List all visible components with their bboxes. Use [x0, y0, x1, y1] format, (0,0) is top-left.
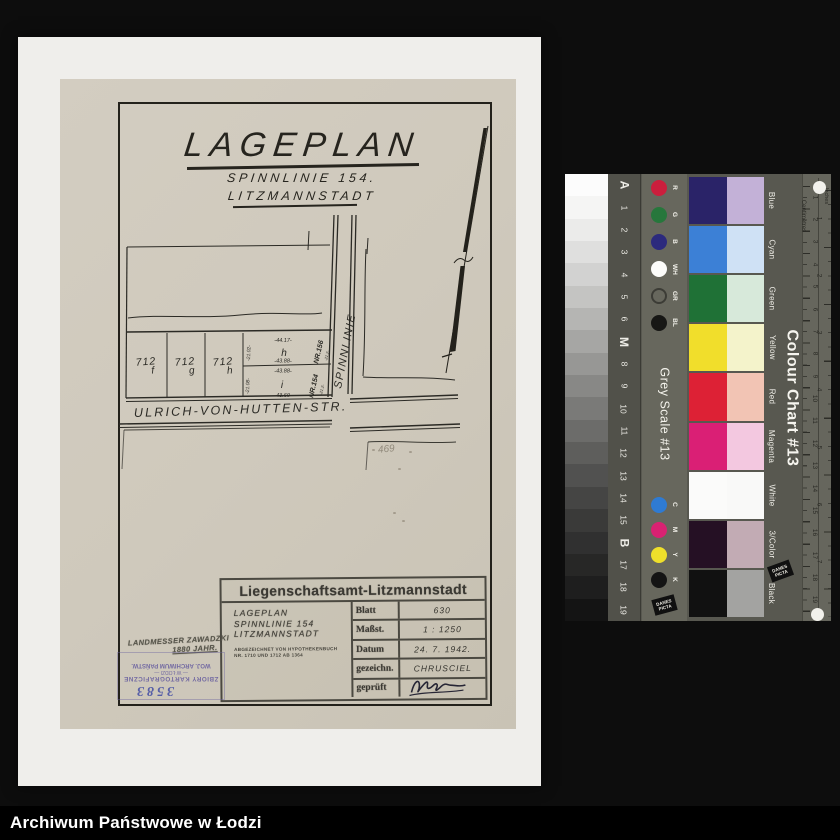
index-label: 19 [608, 599, 640, 621]
row-label: Maßst. [353, 621, 400, 639]
dot-label: WH [671, 264, 678, 273]
dot-swatch-row: Y [651, 542, 679, 567]
index-label-text: 4 [619, 272, 629, 277]
stamp-line-collections: ZBIORY KARTOGRAFICZNE [118, 675, 224, 682]
stamp-line-archive: WOJ. ARCHIWUM PAŃSTW. [118, 661, 224, 668]
dot-label: BL [671, 318, 678, 327]
inch-number-text: 6 [815, 502, 822, 506]
pencil-speck [372, 449, 375, 451]
row-value: CHRUSCIEL [400, 659, 485, 677]
signature-scribble [405, 676, 479, 699]
index-label: 17 [608, 554, 640, 576]
tint-patch [727, 324, 764, 371]
color-row-label: Green [768, 287, 777, 311]
grey-step [565, 576, 608, 598]
inch-number-text: 1 [815, 217, 822, 221]
color-dot [651, 261, 667, 277]
color-row: Blue [689, 177, 780, 224]
index-label: A [608, 174, 640, 196]
ruler: 12345678910111213141516171819 1234567 Ce… [802, 174, 831, 621]
color-row-label-wrap: Yellow [764, 324, 780, 371]
pencil-speck [393, 512, 396, 514]
punch-hole [811, 608, 824, 621]
inch-number-text: 3 [815, 331, 822, 335]
color-row: Magenta [689, 423, 780, 470]
row-value: 630 [400, 601, 485, 619]
plot-number-row: 712 f 712 g 712 h [127, 336, 243, 396]
title-block: Liegenschaftsamt-Litzmannstadt LAGEPLANS… [219, 576, 487, 702]
grey-step [565, 174, 608, 196]
color-row-label-wrap: White [764, 472, 780, 519]
index-label-text: 17 [619, 560, 629, 569]
index-label-text: 19 [619, 605, 629, 614]
index-label: 4 [608, 263, 640, 285]
grey-step [565, 599, 608, 621]
index-label-text: B [617, 538, 631, 547]
grey-step [565, 353, 608, 375]
solid-patch [689, 324, 727, 371]
inch-numbers: 1234567 [814, 190, 823, 590]
grey-step [565, 397, 608, 419]
color-dot [651, 572, 667, 588]
index-label-text: 3 [619, 250, 629, 255]
color-row-label-wrap: Blue [764, 177, 780, 224]
pencil-note: 469 [377, 443, 395, 456]
note-lines: ABGEZEICHNET VON HYPOTHEKENBUCHNR. 1710 … [234, 646, 348, 659]
solid-patch [689, 472, 727, 519]
row-label: geprüft [353, 679, 400, 697]
plot-parcel: 712 g [163, 334, 207, 397]
title-block-row: Maßst. 1 : 1250 [353, 620, 485, 641]
solid-patch [689, 275, 727, 322]
inch-quarter-ticks [828, 190, 832, 617]
grey-step [565, 263, 608, 285]
grey-step [565, 442, 608, 464]
grey-step [565, 464, 608, 486]
row-label: Datum [353, 640, 400, 658]
accession-number: 3583 [118, 682, 224, 699]
footer-bar: Archiwum Państwowe w Łodzi [0, 806, 840, 840]
grey-step [565, 375, 608, 397]
dot-label: K [671, 575, 678, 584]
color-row: Green [689, 275, 780, 322]
index-label-text: 6 [619, 317, 629, 322]
color-dot [651, 547, 667, 563]
color-row: Yellow [689, 324, 780, 371]
color-dot [651, 180, 667, 196]
grey-step [565, 487, 608, 509]
grey-step [565, 219, 608, 241]
solid-patch [689, 521, 727, 568]
inch-number: 6 [814, 476, 823, 533]
color-row-label: Red [767, 389, 776, 405]
tint-patch [727, 423, 764, 470]
index-label: 3 [608, 241, 640, 263]
inch-number: 7 [814, 533, 823, 590]
tint-patch [727, 570, 764, 617]
inch-number: 3 [814, 304, 823, 361]
color-row-label-wrap: Green [764, 275, 780, 322]
title-block-header: Liegenschaftsamt-Litzmannstadt [221, 578, 484, 603]
grey-step [565, 286, 608, 308]
solid-patch [689, 570, 727, 617]
index-label-text: 15 [619, 516, 629, 525]
color-dot [651, 522, 667, 538]
index-label: 6 [608, 308, 640, 330]
color-dot [651, 234, 667, 250]
tint-patch [727, 521, 764, 568]
grey-step [565, 509, 608, 531]
color-row-label: Black [768, 583, 777, 604]
dot-label: R [671, 183, 678, 192]
index-label-text: 18 [619, 583, 629, 592]
inch-number-text: 7 [815, 560, 822, 564]
dot-label: M [671, 525, 678, 534]
dot-swatches-cmyk: C M Y K [651, 492, 679, 592]
color-row-label: Cyan [768, 240, 777, 260]
dot-swatch-row: G [651, 201, 679, 228]
index-label: 18 [608, 576, 640, 598]
dot-label: GR [671, 291, 678, 300]
color-dot [651, 207, 667, 223]
inch-number: 5 [814, 419, 823, 476]
dot-swatch-row: C [651, 492, 679, 517]
index-label: 5 [608, 286, 640, 308]
project-line: LITZMANNSTADT [234, 628, 348, 639]
color-row: Black [689, 570, 780, 617]
dot-swatch-row: WH [651, 255, 679, 282]
grey-step [565, 196, 608, 218]
row-label: gezeichn. [353, 660, 400, 678]
archive-accession-stamp: 3583 ZBIORY KARTOGRAFICZNE — W ŁODZI — W… [117, 652, 225, 700]
plot-letter: g [188, 365, 195, 376]
solid-patch [689, 177, 727, 224]
tint-patch [727, 226, 764, 273]
grey-step [565, 554, 608, 576]
cm-half-ticks [803, 186, 807, 613]
index-label-text: 1 [619, 205, 629, 210]
row-value: 1 : 1250 [400, 620, 485, 638]
dot-label: G [671, 210, 678, 219]
index-label-text: 14 [619, 493, 629, 502]
pencil-speck [409, 451, 412, 453]
color-row: 3/Color [689, 521, 780, 568]
index-label-text: A [617, 181, 631, 190]
color-row-label: 3/Color [768, 530, 777, 558]
grey-scale-strip [565, 174, 608, 621]
row-label: Blatt [353, 602, 400, 620]
grey-step [565, 308, 608, 330]
title-block-row: Blatt 630 [353, 601, 485, 622]
plot-parcel: 712 f [124, 334, 168, 397]
color-row-label: White [768, 484, 777, 506]
color-row: Cyan [689, 226, 780, 273]
tint-patch [727, 177, 764, 224]
color-dot [651, 315, 667, 331]
color-row-label: Blue [768, 192, 777, 209]
pencil-speck [398, 468, 401, 470]
brand-badge: DANES PICTA [651, 594, 677, 615]
color-row-label-wrap: 3/Color [764, 521, 780, 568]
dot-swatch-row: BL [651, 309, 679, 336]
tint-patch [727, 373, 764, 420]
dot-label: B [671, 237, 678, 246]
inch-number-text: 4 [815, 388, 822, 392]
grey-scale-title: Grey Scale #13 [658, 367, 672, 460]
plan-subtitle-street: SPINNLINIE 154. [201, 171, 403, 185]
inch-number-text: 2 [815, 274, 822, 278]
dot-swatch-row: K [651, 567, 679, 592]
plan-title: LAGEPLAN [166, 126, 439, 165]
dot-swatch-row: R [651, 174, 679, 201]
dot-label: C [671, 500, 678, 509]
color-dot [651, 497, 667, 513]
color-row-label: Magenta [768, 429, 777, 462]
dot-swatch-column: R G B WH [642, 174, 687, 621]
grey-step [565, 532, 608, 554]
inch-number: 2 [814, 247, 823, 304]
color-row-label: Yellow [768, 336, 777, 361]
index-label: B [608, 532, 640, 554]
color-patch-grid: Blue Cyan Green [687, 174, 780, 621]
plot-letter: f [151, 365, 155, 376]
color-row: White [689, 472, 780, 519]
solid-patch [689, 226, 727, 273]
dot-swatch-row: M [651, 517, 679, 542]
index-label-text: 5 [619, 295, 629, 300]
cm-number-text: 19 [811, 596, 818, 603]
grey-step [565, 241, 608, 263]
note-line: NR. 1710 UND 1712 AB 1364 [234, 652, 348, 659]
inch-number: 4 [814, 361, 823, 418]
title-block-project-cell: LAGEPLANSPINNLINIE 154LITZMANNSTADT ABGE… [222, 602, 354, 698]
archive-photo-page: LAGEPLAN SPINNLINIE 154. LITZMANNSTADT [0, 0, 840, 840]
dot-swatches-rgb: R G B WH [651, 174, 679, 336]
project-lines: LAGEPLANSPINNLINIE 154LITZMANNSTADT [234, 607, 348, 639]
stamp-line-city: — W ŁODZI — [118, 668, 224, 675]
color-row-label-wrap: Cyan [764, 226, 780, 273]
tint-patch [727, 275, 764, 322]
solid-patch [689, 423, 727, 470]
plot-parcel: 712 h [202, 334, 246, 397]
title-block-row: Datum 24. 7. 1942. [353, 640, 485, 661]
tint-patch [727, 472, 764, 519]
colour-chart-title: Colour Chart #13 [782, 329, 800, 466]
note-line: ABGEZEICHNET VON HYPOTHEKENBUCH [234, 646, 348, 653]
dot-swatch-row: GR [651, 282, 679, 309]
solid-patch [689, 373, 727, 420]
index-label: 1 [608, 196, 640, 218]
grey-step [565, 330, 608, 352]
color-row-label-wrap: Red [764, 373, 780, 420]
calibration-chart: A 1 2 3 4 5 [565, 174, 831, 621]
index-label: 15 [608, 509, 640, 531]
punch-hole [813, 181, 826, 194]
color-row-label-wrap: Magenta [764, 423, 780, 470]
cm-caption-wrap: Centimetres [793, 188, 813, 244]
color-dot [651, 288, 667, 304]
color-row: Red [689, 373, 780, 420]
pencil-speck [402, 520, 405, 522]
cm-caption: Centimetres [800, 200, 806, 232]
index-label-text: 2 [619, 227, 629, 232]
plan-subtitle-city: LITZMANNSTADT [201, 189, 403, 203]
archive-name: Archiwum Państwowe w Łodzi [10, 813, 262, 833]
index-label: 2 [608, 219, 640, 241]
grey-step [565, 420, 608, 442]
inch-number-text: 5 [815, 445, 822, 449]
row-value: 24. 7. 1942. [400, 640, 485, 658]
dot-swatch-row: B [651, 228, 679, 255]
dot-label: Y [671, 550, 678, 559]
